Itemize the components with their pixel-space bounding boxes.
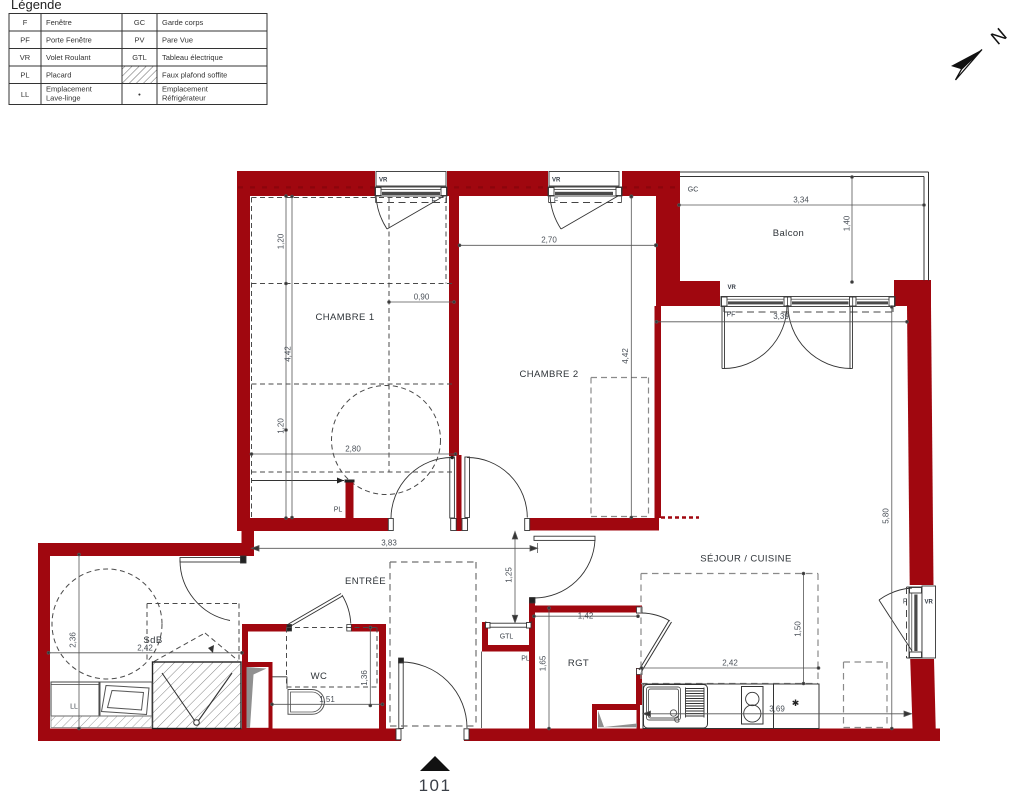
svg-text:Garde corps: Garde corps [162,18,204,27]
svg-text:3,69: 3,69 [769,705,785,714]
svg-text:GTL: GTL [132,53,147,62]
svg-text:CHAMBRE 2: CHAMBRE 2 [519,369,578,380]
svg-text:1,65: 1,65 [539,655,548,671]
svg-text:Lave-linge: Lave-linge [46,94,81,103]
svg-text:VR: VR [552,178,561,184]
svg-text:4,42: 4,42 [284,346,293,362]
svg-text:2,42: 2,42 [722,659,738,668]
svg-text:1,25: 1,25 [505,567,514,583]
svg-text:Porte Fenêtre: Porte Fenêtre [46,36,92,45]
svg-text:F: F [23,18,28,27]
svg-text:PF: PF [727,312,736,319]
svg-text:PF: PF [20,36,30,45]
svg-text:2,36: 2,36 [69,632,78,648]
svg-text:LL: LL [70,704,78,711]
svg-text:3,39: 3,39 [773,312,789,321]
svg-text:PL: PL [20,71,29,80]
svg-text:✱: ✱ [792,698,800,708]
svg-text:1,51: 1,51 [319,695,335,704]
svg-text:F: F [903,599,907,606]
svg-text:1,20: 1,20 [277,418,286,434]
svg-text:Réfrigérateur: Réfrigérateur [162,94,206,103]
svg-text:5,80: 5,80 [882,508,891,524]
svg-text:LL: LL [21,90,29,99]
svg-text:Pare Vue: Pare Vue [162,36,193,45]
svg-text:Placard: Placard [46,71,71,80]
svg-text:GTL: GTL [500,634,514,641]
svg-text:4,42: 4,42 [621,348,630,364]
svg-text:PV: PV [134,36,144,45]
svg-text:0,90: 0,90 [414,293,430,302]
svg-text:1,42: 1,42 [578,612,594,621]
svg-text:WC: WC [311,671,328,682]
svg-text:1,50: 1,50 [794,621,803,637]
svg-text:Fenêtre: Fenêtre [46,18,72,27]
svg-text:2,70: 2,70 [541,236,557,245]
svg-text:SdB: SdB [143,635,162,646]
svg-text:Emplacement: Emplacement [46,85,93,94]
svg-text:Emplacement: Emplacement [162,85,209,94]
svg-text:ENTRÉE: ENTRÉE [345,576,386,587]
svg-text:GC: GC [688,187,699,194]
svg-text:GC: GC [134,18,146,27]
svg-text:Tableau électrique: Tableau électrique [162,53,223,62]
svg-text:Faux plafond soffite: Faux plafond soffite [162,71,227,80]
svg-text:PL: PL [521,656,530,663]
svg-text:•: • [138,90,141,99]
svg-text:1,40: 1,40 [843,215,852,231]
svg-text:VR: VR [20,53,31,62]
svg-text:Volet Roulant: Volet Roulant [46,53,92,62]
svg-text:VR: VR [925,600,934,606]
svg-text:N: N [987,24,1011,49]
svg-text:RGT: RGT [568,658,589,669]
svg-text:Légende: Légende [11,0,62,12]
svg-text:VR: VR [379,178,388,184]
svg-text:101: 101 [419,776,452,795]
svg-text:2,80: 2,80 [345,445,361,454]
svg-text:SÉJOUR / CUISINE: SÉJOUR / CUISINE [700,554,791,565]
svg-text:PL: PL [334,507,343,514]
svg-text:F: F [431,198,435,205]
svg-text:1,20: 1,20 [277,233,286,249]
svg-text:F: F [554,198,558,205]
svg-text:VR: VR [728,285,737,291]
svg-text:Balcon: Balcon [773,228,804,239]
svg-text:CHAMBRE 1: CHAMBRE 1 [315,312,374,323]
svg-text:1,36: 1,36 [360,670,369,686]
svg-text:3,34: 3,34 [793,196,809,205]
svg-text:3,83: 3,83 [381,539,397,548]
